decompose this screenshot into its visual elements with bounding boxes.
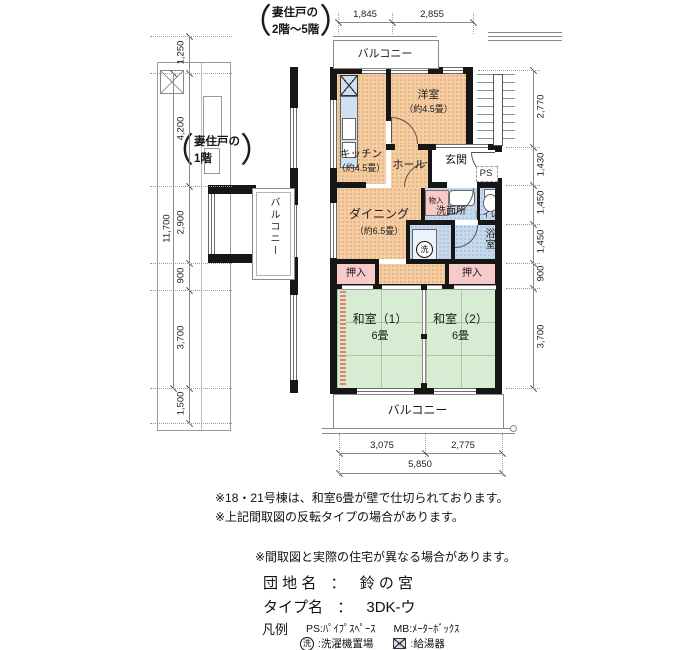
witness-line <box>506 288 540 289</box>
witness-line <box>150 263 232 264</box>
dim-label: 1,250 <box>176 35 187 71</box>
witness-line <box>506 147 540 148</box>
estate-name-row: 団 地 名 ： 鈴 の 宮 <box>263 572 413 593</box>
ghost-unit-outline <box>157 62 231 63</box>
witness-line <box>392 13 393 34</box>
room-label-washitsu1: 和室（1） 6畳 <box>337 312 423 343</box>
dim-label: 2,770 <box>536 89 547 125</box>
stair-rail <box>493 74 503 146</box>
ghost-unit-outline <box>157 430 231 431</box>
estate-label: 団 地 名 <box>263 575 316 592</box>
note-line2: 1階 <box>194 153 212 165</box>
washing-machine-icon: 洗 <box>300 637 314 650</box>
room-size: （約4.5畳） <box>404 104 453 114</box>
room-label-genkan: 玄関 <box>433 153 479 167</box>
note-text: 妻住戸の 2階～5階 <box>272 5 319 40</box>
paren-close: ） <box>240 131 274 171</box>
dimension-line <box>339 473 502 474</box>
fusuma-door <box>382 285 442 290</box>
note-mirror: ※上記間取図の反転タイプの場合があります。 <box>215 508 464 525</box>
legend-mb: MB:ﾒｰﾀｰﾎﾞｯｸｽ <box>393 621 459 636</box>
room-label-yoshitsu: 洋室 （約4.5畳） <box>391 88 466 117</box>
witness-line <box>150 388 232 389</box>
room-label-hall: ホール <box>388 158 430 172</box>
note-difference: ※間取図と実際の住宅が異なる場合があります。 <box>255 548 516 565</box>
witness-line <box>478 70 540 71</box>
type-label: タイプ名 <box>263 599 323 616</box>
dim-label: 900 <box>176 264 187 288</box>
rail-post-icon <box>510 425 517 432</box>
witness-line <box>425 434 426 457</box>
kitchen-sink-icon <box>342 118 356 140</box>
room-name: 洋室 <box>418 89 440 101</box>
note-text: 妻住戸の 1階 <box>194 134 240 169</box>
balcony-label: バルコニー <box>266 197 281 273</box>
wall <box>477 182 502 188</box>
balcony-label: バルコニー <box>333 403 502 419</box>
door-leaf <box>391 117 392 143</box>
witness-line <box>506 388 540 389</box>
dimension-line <box>338 22 473 23</box>
water-heater-icon <box>340 75 358 96</box>
window <box>290 108 298 168</box>
note-line1: 妻住戸の <box>194 136 240 148</box>
dim-label: 1,450 <box>536 185 547 221</box>
room-name: キッチン <box>340 148 382 160</box>
fusuma-door <box>342 285 373 290</box>
room-name: 和室（2） <box>433 312 488 326</box>
note-line2: 2階～5階 <box>272 24 319 36</box>
legend-heater: :給湯器 <box>410 636 444 650</box>
room-name: ダイニング <box>349 207 409 221</box>
wall <box>208 254 256 263</box>
room-size: （約6.5畳） <box>355 226 404 236</box>
dim-label: 1,845 <box>345 9 385 20</box>
wall <box>330 259 377 264</box>
room-label-bath: 浴室 <box>481 228 496 262</box>
dim-label: 3,700 <box>176 320 187 356</box>
dim-label: 3,700 <box>536 319 547 355</box>
wall <box>421 284 427 290</box>
witness-line <box>502 434 503 476</box>
wall <box>428 182 447 188</box>
room-size: 6畳 <box>452 330 469 342</box>
dim-label: 4,200 <box>176 111 187 147</box>
dim-label: 2,900 <box>176 205 187 241</box>
dim-label: 2,775 <box>443 440 483 451</box>
wall <box>478 220 502 225</box>
separator: ： <box>331 575 346 592</box>
dim-label: 900 <box>536 262 547 286</box>
note-partition: ※18・21号棟は、和室6畳が壁で仕切られております。 <box>215 489 509 506</box>
paren-open: （ <box>238 2 272 42</box>
dim-label: 1,430 <box>536 147 547 183</box>
window <box>436 144 488 150</box>
ps-label: PS <box>474 168 498 180</box>
upper-rail-lines <box>488 32 562 41</box>
room-size: 6畳 <box>371 330 388 342</box>
dim-label: 1,450 <box>536 224 547 260</box>
ghost-unit-outline <box>157 62 158 430</box>
witness-line <box>150 73 232 74</box>
witness-line <box>150 290 232 291</box>
witness-line <box>506 263 540 264</box>
room-size: （約4.5畳） <box>337 163 386 173</box>
room-label-dining: ダイニング （約6.5畳） <box>330 207 428 238</box>
witness-line <box>339 434 340 476</box>
balcony-label: バルコニー <box>333 47 437 61</box>
wall <box>330 182 366 188</box>
note-line1: 妻住戸の <box>272 7 318 19</box>
legend-title: 凡例 <box>262 619 288 638</box>
ghost-unit-outline <box>201 62 202 430</box>
wall <box>421 383 427 388</box>
dimension-line <box>339 453 502 454</box>
room-label-senmenjo: 洗面所 <box>424 205 478 218</box>
ghost-unit-outline <box>230 62 231 430</box>
balcony-rail <box>322 428 515 434</box>
room-name: 和室（1） <box>353 312 408 326</box>
water-heater-icon <box>393 638 406 649</box>
window <box>208 194 217 254</box>
separator: ： <box>337 599 352 616</box>
witness-line <box>150 423 232 424</box>
estate-value: 鈴 の 宮 <box>360 575 413 592</box>
dimension-line <box>173 73 174 388</box>
dimension-line <box>189 36 190 423</box>
witness-line <box>473 13 474 34</box>
witness-line <box>150 186 232 187</box>
wall <box>418 144 436 150</box>
upper-floors-note: （ 妻住戸の 2階～5階 ） <box>238 2 353 42</box>
dim-label: 11,700 <box>162 207 173 251</box>
floor-plan-canvas: バルコニー 洗 <box>0 0 700 650</box>
legend-ps: PS:ﾊﾟｲﾌﾟｽﾍﾟｰｽ <box>306 621 375 636</box>
type-name-row: タイプ名 ： 3DK-ウ <box>263 596 416 617</box>
legend-row-2: 洗 :洗濯機置場 :給湯器 <box>300 636 445 650</box>
window <box>443 67 463 74</box>
legend-washer: :洗濯機置場 <box>318 636 373 650</box>
wall <box>375 259 379 286</box>
room-label-oshiire-right: 押入 <box>449 267 495 280</box>
witness-line <box>506 185 540 186</box>
room-label-kitchen: キッチン （約4.5畳） <box>330 148 392 175</box>
room-label-toilet: トイレ <box>472 210 500 220</box>
window <box>290 295 298 380</box>
type-value: 3DK-ウ <box>366 599 415 616</box>
witness-line <box>150 36 232 37</box>
room-label-washitsu2: 和室（2） 6畳 <box>426 312 495 343</box>
witness-line <box>506 224 540 225</box>
dimension-line <box>533 70 534 388</box>
fusuma-door <box>454 285 496 290</box>
room-dining-extension <box>379 264 445 285</box>
dim-label: 2,855 <box>412 9 452 20</box>
wall <box>466 67 473 150</box>
witness-line <box>338 13 339 34</box>
dim-label: 5,850 <box>400 459 440 470</box>
washing-machine-icon: 洗 <box>416 241 433 258</box>
dim-label: 3,075 <box>362 440 402 451</box>
room-label-oshiire-left: 押入 <box>337 267 375 280</box>
